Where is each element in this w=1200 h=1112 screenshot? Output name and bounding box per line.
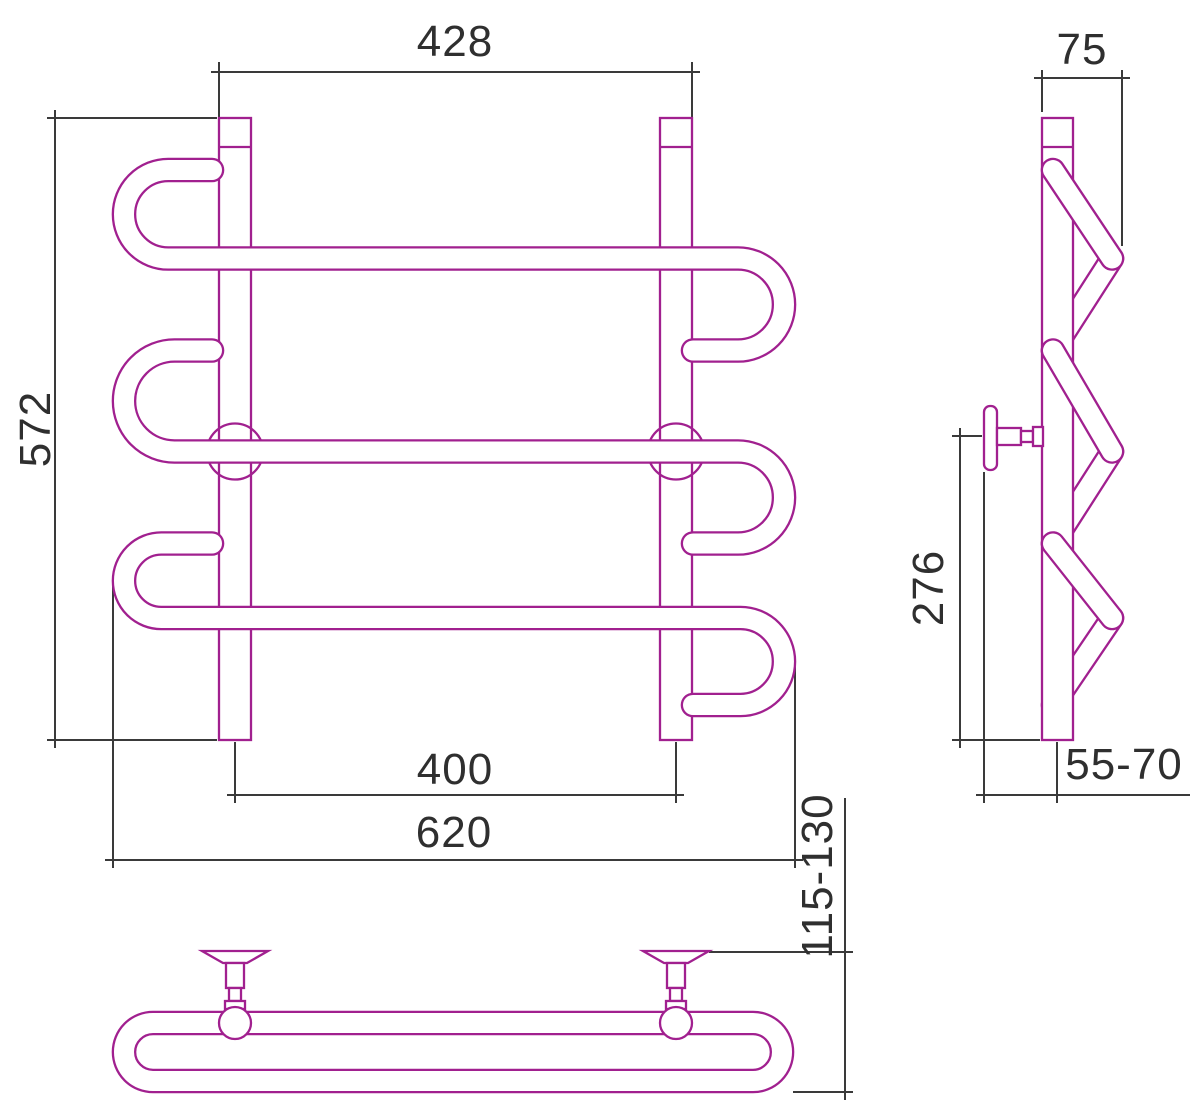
post-section xyxy=(660,1007,692,1039)
dim-label-428: 428 xyxy=(417,17,493,67)
left-post xyxy=(219,118,251,740)
dim-label-75: 75 xyxy=(1057,25,1108,75)
bracket-stem xyxy=(997,428,1021,445)
side-view xyxy=(952,70,1190,803)
dim-label-115-130: 115-130 xyxy=(793,793,843,958)
post-section xyxy=(219,1007,251,1039)
bracket-flange xyxy=(202,951,268,963)
bracket-stem xyxy=(667,963,685,988)
side-wall-bracket xyxy=(984,406,1043,470)
bracket-stem xyxy=(226,963,244,988)
drawing-canvas xyxy=(0,0,1200,1112)
bracket-neck xyxy=(1021,431,1033,442)
dim-label-572: 572 xyxy=(11,391,61,467)
bracket-flange xyxy=(984,406,997,470)
technical-drawing: 428 572 400 620 115-130 75 276 55-70 xyxy=(0,0,1200,1112)
dim-label-400: 400 xyxy=(417,745,493,795)
bracket-neck xyxy=(229,988,241,1001)
dim-label-55-70: 55-70 xyxy=(1065,740,1183,790)
dim-label-276: 276 xyxy=(904,550,954,626)
dim-label-620: 620 xyxy=(416,808,492,858)
bracket-flange xyxy=(643,951,709,963)
right-post xyxy=(660,118,692,740)
bracket-neck xyxy=(670,988,682,1001)
bracket-block xyxy=(1033,427,1043,446)
